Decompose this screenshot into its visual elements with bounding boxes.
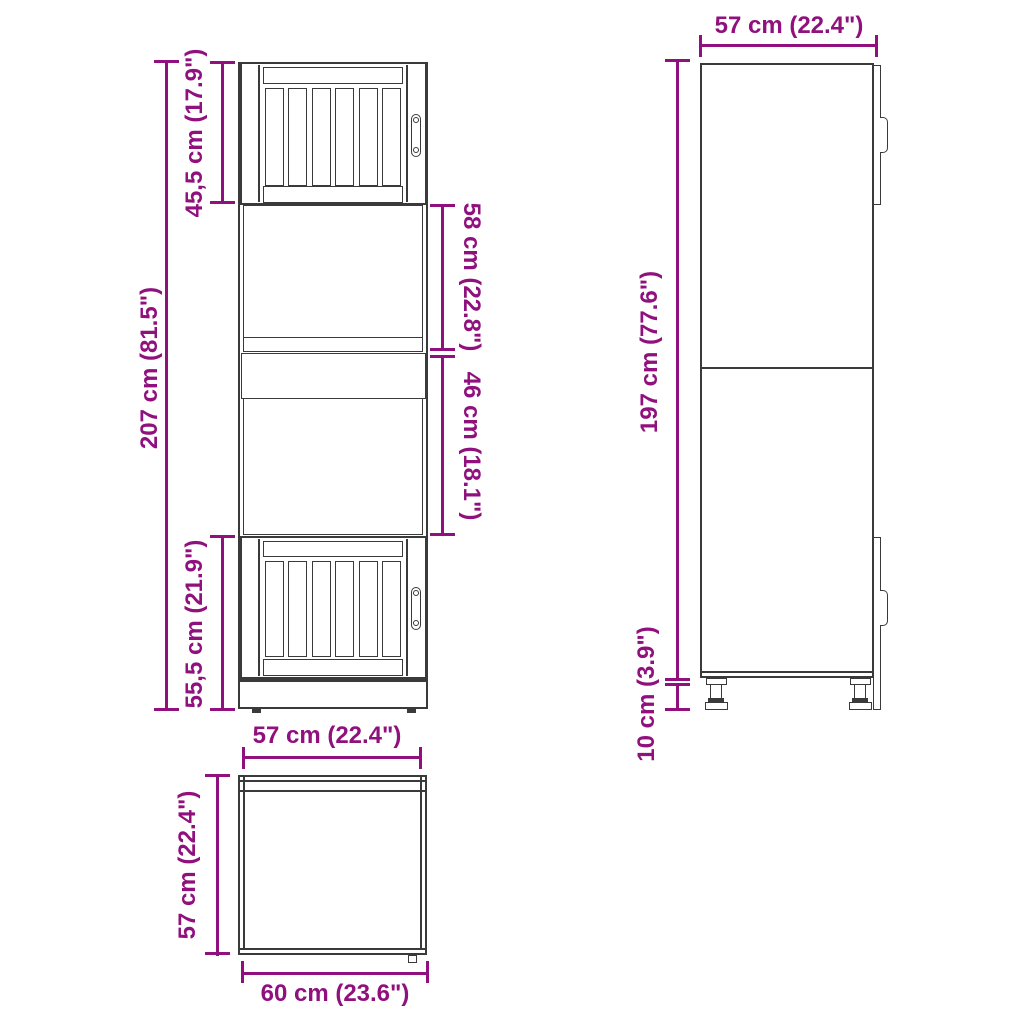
dim-tick [210,708,235,711]
front-bottom-door-slat [265,561,284,657]
front-bottom-door-top-rail [263,541,403,557]
plan-front-door-line [240,948,425,950]
side-cabinet-body [700,63,874,678]
dim-tick [430,355,455,358]
dim-tick [665,683,690,686]
dim-label-plan-depth: 57 cm (22.4") [176,791,200,940]
dim-label-lower-niche: 46 cm (18.1") [459,372,483,521]
plan-right-wall-line [420,777,422,949]
dim-line-body-height [676,60,679,681]
dim-label-body-height: 197 cm (77.6") [638,271,662,433]
front-top-door-right-stile-line [406,65,408,202]
diagram-canvas: 207 cm (81.5") 45,5 cm (17.9") 55,5 cm (… [0,0,1024,1024]
dim-label-total-depth: 60 cm (23.6") [261,982,410,1006]
dim-tick [205,952,230,955]
front-upper-niche [243,205,423,338]
front-bottom-door-slat [335,561,354,657]
dim-tick [665,708,690,711]
dim-tick [154,60,179,63]
dim-line-plan-width [243,756,422,759]
plan-outline [238,775,427,955]
front-bottom-door-handle-knob [413,590,419,596]
dim-tick [210,535,235,538]
side-divider-line [701,367,873,369]
dim-tick [430,533,455,536]
dim-line-plan-depth [216,775,219,956]
dim-tick [665,678,690,681]
dim-label-leg-height: 10 cm (3.9") [635,626,659,761]
dim-tick [875,35,878,57]
front-top-door-left-stile-line [258,65,260,202]
front-bottom-door-slat [312,561,331,657]
front-bottom-door-handle-knob [413,620,419,626]
front-top-door-top-rail [263,67,403,84]
side-upper-door-handle [880,117,888,153]
dim-line-top-door [221,62,224,204]
plan-back-panel-line [240,790,425,792]
dim-line-lower-niche [441,356,444,536]
dim-label-side-depth: 57 cm (22.4") [715,14,864,38]
front-top-door-slat [265,88,284,186]
front-shelf-edge [243,337,423,352]
plan-left-wall-line [243,777,245,949]
front-foot-mark [252,708,261,713]
front-top-door-slat [335,88,354,186]
dim-label-total-height: 207 cm (81.5") [138,287,162,449]
dim-label-top-door: 45,5 cm (17.9") [183,49,207,218]
front-lower-niche [243,398,423,535]
dim-tick [430,348,455,351]
front-bottom-door-slat [382,561,401,657]
plan-handle [408,955,417,963]
front-bottom-door-right-stile-line [406,539,408,676]
side-leg-foot [849,702,872,710]
dim-line-side-depth [700,44,878,47]
dim-label-bottom-door: 55,5 cm (21.9") [183,540,207,709]
dim-tick [699,35,702,57]
front-bottom-door-left-stile-line [258,539,260,676]
dim-line-upper-niche [441,205,444,351]
side-bottom-panel-line [701,671,873,673]
dim-tick [426,961,429,983]
dim-tick [205,774,230,777]
plan-back-line [240,780,425,782]
front-top-door-slat [312,88,331,186]
front-top-door-slat [288,88,307,186]
dim-tick [154,708,179,711]
side-lower-door-handle [880,590,888,626]
dim-line-total-height [165,61,168,711]
front-foot-mark [407,708,416,713]
front-middle-panel [241,353,426,399]
dim-tick [665,59,690,62]
front-bottom-door-slat [359,561,378,657]
dim-line-total-depth [242,972,429,975]
front-plinth [238,679,428,709]
front-top-door-bottom-rail [263,186,403,203]
dim-line-leg-height [676,684,679,711]
dim-tick [241,961,244,983]
dim-line-bottom-door [221,537,224,711]
dim-tick [419,747,422,769]
front-top-door-handle-knob [413,117,419,123]
dim-tick [242,747,245,769]
dim-label-upper-niche: 58 cm (22.8") [459,203,483,352]
dim-label-plan-width: 57 cm (22.4") [253,724,402,748]
front-top-door-handle-knob [413,147,419,153]
front-plinth-top-band [240,679,426,682]
dim-tick [210,61,235,64]
front-bottom-door-bottom-rail [263,659,403,676]
front-bottom-door-slat [288,561,307,657]
front-top-door-slat [359,88,378,186]
dim-tick [430,204,455,207]
dim-tick [210,201,235,204]
side-leg-foot [705,702,728,710]
front-top-door-slat [382,88,401,186]
